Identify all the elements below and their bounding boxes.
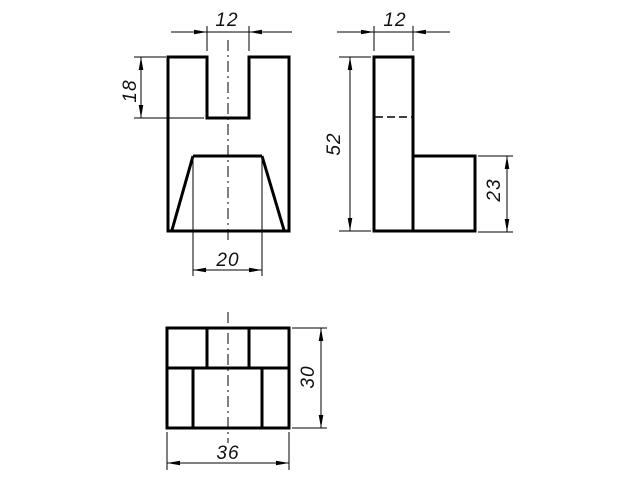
- engineering-drawing: 12 18 20 12 52: [0, 0, 640, 480]
- arrowhead: [249, 268, 262, 273]
- arrowhead: [505, 219, 510, 232]
- side-view: 12 52 23: [324, 10, 513, 232]
- front-view-taper-left-slant: [172, 156, 193, 230]
- arrowhead: [139, 105, 144, 118]
- arrowhead: [505, 156, 510, 169]
- arrowhead: [413, 30, 426, 35]
- dim-label-front-slot-width: 12: [215, 10, 238, 31]
- dim-label-side-height: 52: [324, 132, 345, 155]
- arrowhead: [139, 57, 144, 70]
- arrowhead: [319, 415, 324, 428]
- front-view-taper-right-slant: [262, 156, 284, 230]
- arrowhead: [348, 57, 353, 70]
- dim-label-front-taper-width: 20: [215, 250, 239, 271]
- dim-label-top-width: 36: [216, 443, 239, 464]
- dim-label-top-depth: 30: [298, 365, 319, 388]
- dim-label-side-step-height: 23: [484, 178, 505, 202]
- side-view-outline: [374, 57, 475, 231]
- arrowhead: [276, 461, 289, 466]
- arrowhead: [194, 30, 207, 35]
- arrowhead: [319, 328, 324, 341]
- drawing-canvas: 12 18 20 12 52: [0, 0, 640, 480]
- arrowhead: [193, 268, 206, 273]
- dim-label-front-slot-depth: 18: [120, 79, 141, 102]
- front-view: 12 18 20: [120, 10, 292, 276]
- arrowhead: [348, 218, 353, 231]
- arrowhead: [361, 30, 374, 35]
- arrowhead: [167, 461, 180, 466]
- dim-label-side-width: 12: [383, 10, 406, 31]
- top-view: 36 30: [167, 312, 327, 470]
- arrowhead: [249, 30, 262, 35]
